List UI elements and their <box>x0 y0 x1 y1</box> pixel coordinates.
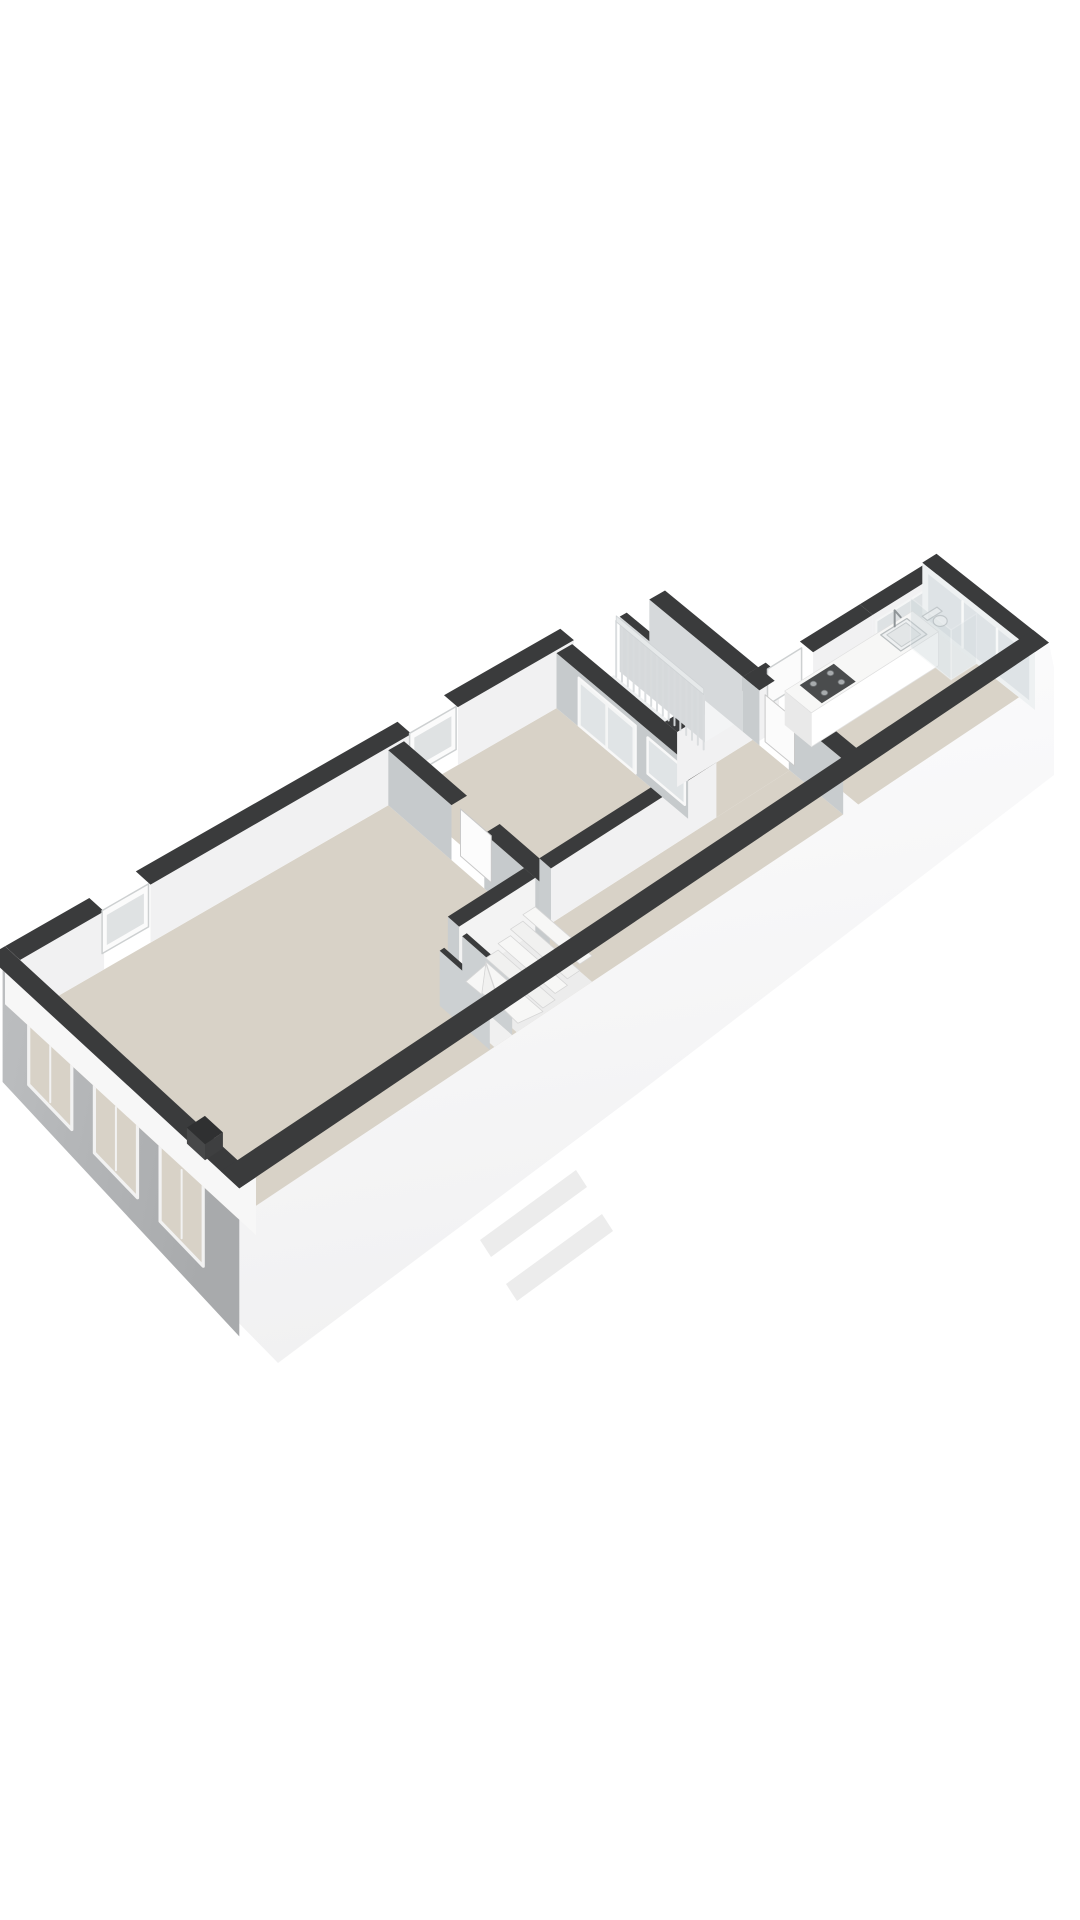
hob-burner-1 <box>810 681 817 686</box>
hob-burner-2 <box>821 690 828 695</box>
hob-burner-3 <box>827 670 834 675</box>
hob-burner-2 <box>821 690 828 695</box>
hob-burner-3 <box>827 670 834 675</box>
wc-toilet-bowl <box>933 616 947 627</box>
wc-toilet-bowl <box>933 616 947 627</box>
hob-burner-4 <box>838 679 845 684</box>
floorplan-page <box>0 0 1080 1920</box>
hob-burner-4 <box>838 679 845 684</box>
hob-burner-1 <box>810 681 817 686</box>
floorplan-3d-render <box>0 0 1080 1920</box>
floorplan-canvas <box>0 0 1080 1920</box>
